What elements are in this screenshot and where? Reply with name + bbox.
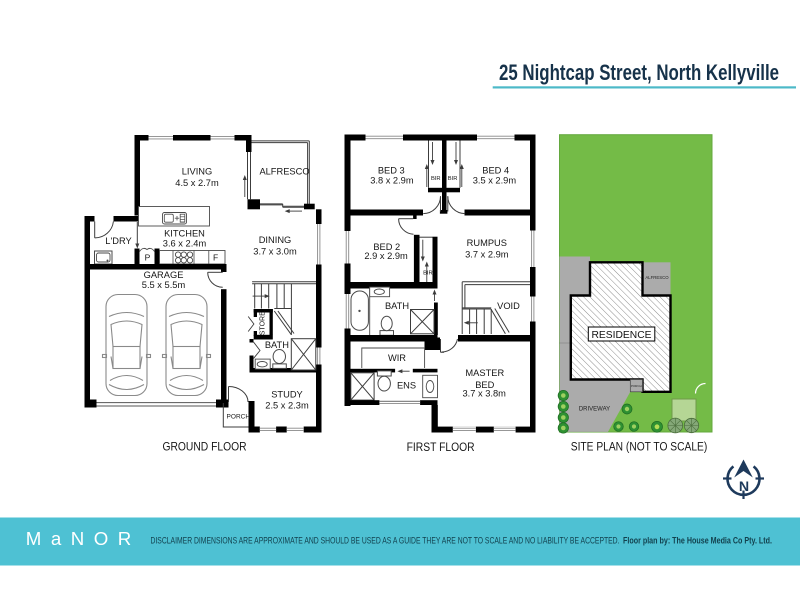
svg-text:GROUND FLOOR: GROUND FLOOR [163,440,247,454]
svg-text:25 Nightcap Street, North Kell: 25 Nightcap Street, North Kellyville [499,60,779,85]
svg-text:BATH: BATH [265,340,289,350]
svg-text:BIR: BIR [423,270,433,276]
svg-text:PORCH: PORCH [227,413,251,420]
svg-text:STUDY: STUDY [271,390,303,400]
svg-text:GARAGE: GARAGE [144,270,184,280]
svg-text:MASTER: MASTER [465,368,504,378]
svg-text:FIRST FLOOR: FIRST FLOOR [407,440,475,454]
svg-text:2.5 x 2.3m: 2.5 x 2.3m [265,401,309,411]
svg-text:F: F [213,253,218,263]
svg-text:3.7 x 2.9m: 3.7 x 2.9m [465,250,509,260]
svg-text:DRIVEWAY: DRIVEWAY [579,407,610,413]
svg-text:VOID: VOID [497,301,520,311]
svg-text:KITCHEN: KITCHEN [164,229,205,239]
svg-text:BATH: BATH [385,301,409,311]
svg-text:3.7 x 3.0m: 3.7 x 3.0m [253,247,297,257]
svg-text:3.6 x 2.4m: 3.6 x 2.4m [163,239,207,249]
svg-text:WIR: WIR [388,353,406,363]
svg-text:BIR: BIR [448,176,458,182]
svg-text:ALFRESCO: ALFRESCO [259,167,309,177]
svg-text:Floor plan by: The House Media: Floor plan by: The House Media Co Pty. L… [623,536,772,547]
svg-text:P: P [145,253,151,263]
svg-text:BIR: BIR [431,176,441,182]
svg-text:PORCH: PORCH [631,384,642,388]
svg-text:SITE PLAN (NOT TO SCALE): SITE PLAN (NOT TO SCALE) [571,440,708,454]
svg-text:3.5 x 2.9m: 3.5 x 2.9m [473,176,517,186]
svg-text:3.7 x 3.8m: 3.7 x 3.8m [462,389,506,399]
svg-text:BED 4: BED 4 [482,166,509,176]
svg-text:STORE: STORE [260,311,267,335]
svg-text:ENS: ENS [397,381,416,391]
svg-text:ALFRESCO: ALFRESCO [645,275,669,280]
svg-text:DINING: DINING [259,235,292,245]
svg-text:MaNOR: MaNOR [26,528,141,549]
svg-text:5.5 x 5.5m: 5.5 x 5.5m [142,280,186,290]
svg-text:LIVING: LIVING [182,167,212,177]
svg-text:BED 3: BED 3 [378,166,405,176]
svg-text:RUMPUS: RUMPUS [467,238,507,248]
svg-text:DISCLAIMER DIMENSIONS ARE APPR: DISCLAIMER DIMENSIONS ARE APPROXIMATE AN… [151,536,620,547]
svg-text:3.8 x 2.9m: 3.8 x 2.9m [370,176,414,186]
svg-text:4.5 x 2.7m: 4.5 x 2.7m [175,178,219,188]
svg-text:RESIDENCE: RESIDENCE [592,330,652,341]
svg-text:2.9 x 2.9m: 2.9 x 2.9m [364,251,408,261]
svg-text:L'DRY: L'DRY [105,236,131,246]
svg-text:N: N [739,479,749,495]
